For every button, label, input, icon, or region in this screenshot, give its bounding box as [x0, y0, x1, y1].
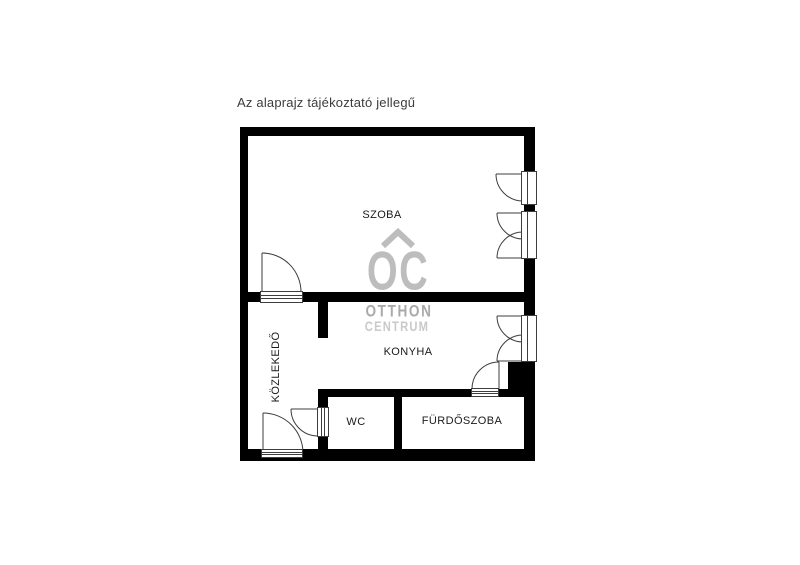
entrance-door-swing [263, 413, 303, 453]
wc-door-swing [291, 409, 318, 436]
wall-szoba-divider-right [303, 292, 524, 302]
szoba-door-swing [262, 253, 301, 292]
entrance-door-threshold [261, 449, 303, 458]
wall-szoba-divider-left [248, 292, 260, 302]
wall-konyha-bottom-left [318, 389, 471, 397]
szoba-door-threshold [260, 291, 303, 303]
konyha-window-casement [497, 316, 523, 361]
bathroom-door-threshold [471, 388, 499, 397]
wall-left [240, 127, 248, 461]
wall-wc-left-upper [318, 397, 328, 407]
floorplan-canvas: Az alaprajz tájékoztató jellegű OC OTTHO… [0, 0, 800, 565]
room-label-furdoszoba: FÜRDŐSZOBA [422, 415, 502, 427]
konyha-window [521, 315, 537, 362]
wall-wc-furdoszoba-divider [394, 397, 402, 449]
wall-wc-left-lower [318, 437, 328, 449]
wc-door-threshold [317, 407, 329, 437]
wall-right-seg4 [524, 397, 535, 449]
szoba-window1 [521, 171, 537, 205]
wall-kozlekedo-konyha-stub [318, 302, 328, 338]
room-label-konyha: KONYHA [384, 346, 433, 358]
room-label-wc: WC [346, 416, 365, 428]
watermark-otthon-text: OTTHON [365, 303, 432, 320]
wall-top [240, 127, 535, 136]
wall-right-seg1 [524, 127, 535, 172]
room-label-kozlekedo: KÖZLEKEDŐ [270, 332, 282, 403]
room-label-szoba: SZOBA [362, 209, 401, 221]
wall-right-seg3 [524, 257, 535, 315]
bathroom-door-swing [472, 362, 499, 389]
szoba-window2 [521, 211, 537, 259]
otthon-centrum-logo-text: OC [367, 244, 429, 299]
plan-disclaimer-text: Az alaprajz tájékoztató jellegű [237, 95, 415, 110]
wall-konyha-bottom-right [499, 389, 524, 397]
szoba-window1-casement [496, 174, 523, 201]
watermark-centrum-text: CENTRUM [365, 319, 429, 333]
szoba-window2-casement [497, 213, 523, 258]
